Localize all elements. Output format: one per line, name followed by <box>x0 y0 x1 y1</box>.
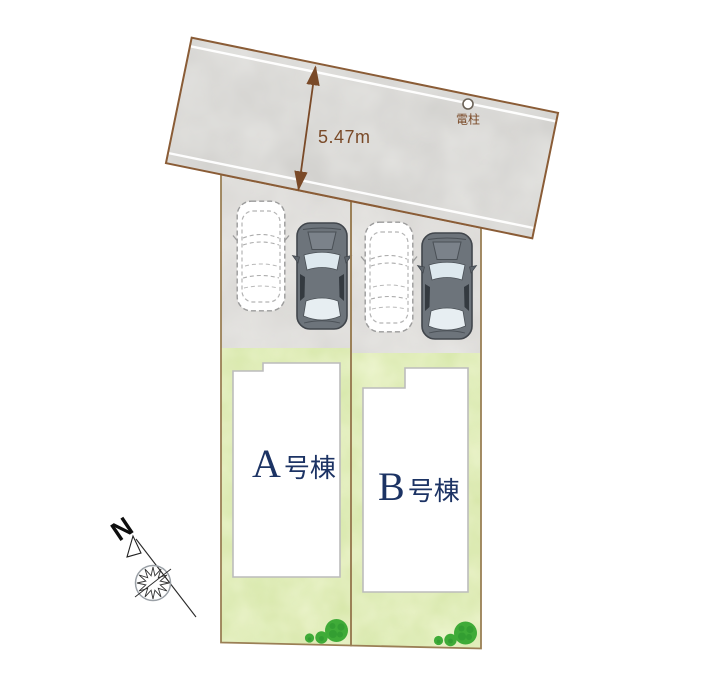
compass-cross-line <box>135 569 171 597</box>
building-b-letter: B <box>378 464 405 509</box>
compass: N <box>106 511 196 617</box>
ghost-car-icon-b <box>361 222 417 332</box>
site-plan-drawing: A号棟 B号棟 <box>0 0 726 700</box>
building-b: B号棟 <box>363 368 468 592</box>
compass-needle <box>136 539 196 617</box>
site-plan: A号棟 B号棟 <box>0 0 726 700</box>
car-icon-b <box>418 233 477 339</box>
building-a-suffix: 号棟 <box>284 454 336 483</box>
building-a-letter: A <box>252 441 281 486</box>
building-b-suffix: 号棟 <box>408 477 460 506</box>
building-a: A号棟 <box>233 363 340 577</box>
road-width-label: 5.47m <box>318 127 371 147</box>
utility-pole-label: 電柱 <box>456 112 480 127</box>
car-icon-a <box>293 223 352 329</box>
ghost-car-icon-a <box>233 201 289 311</box>
utility-pole-icon <box>463 99 473 109</box>
